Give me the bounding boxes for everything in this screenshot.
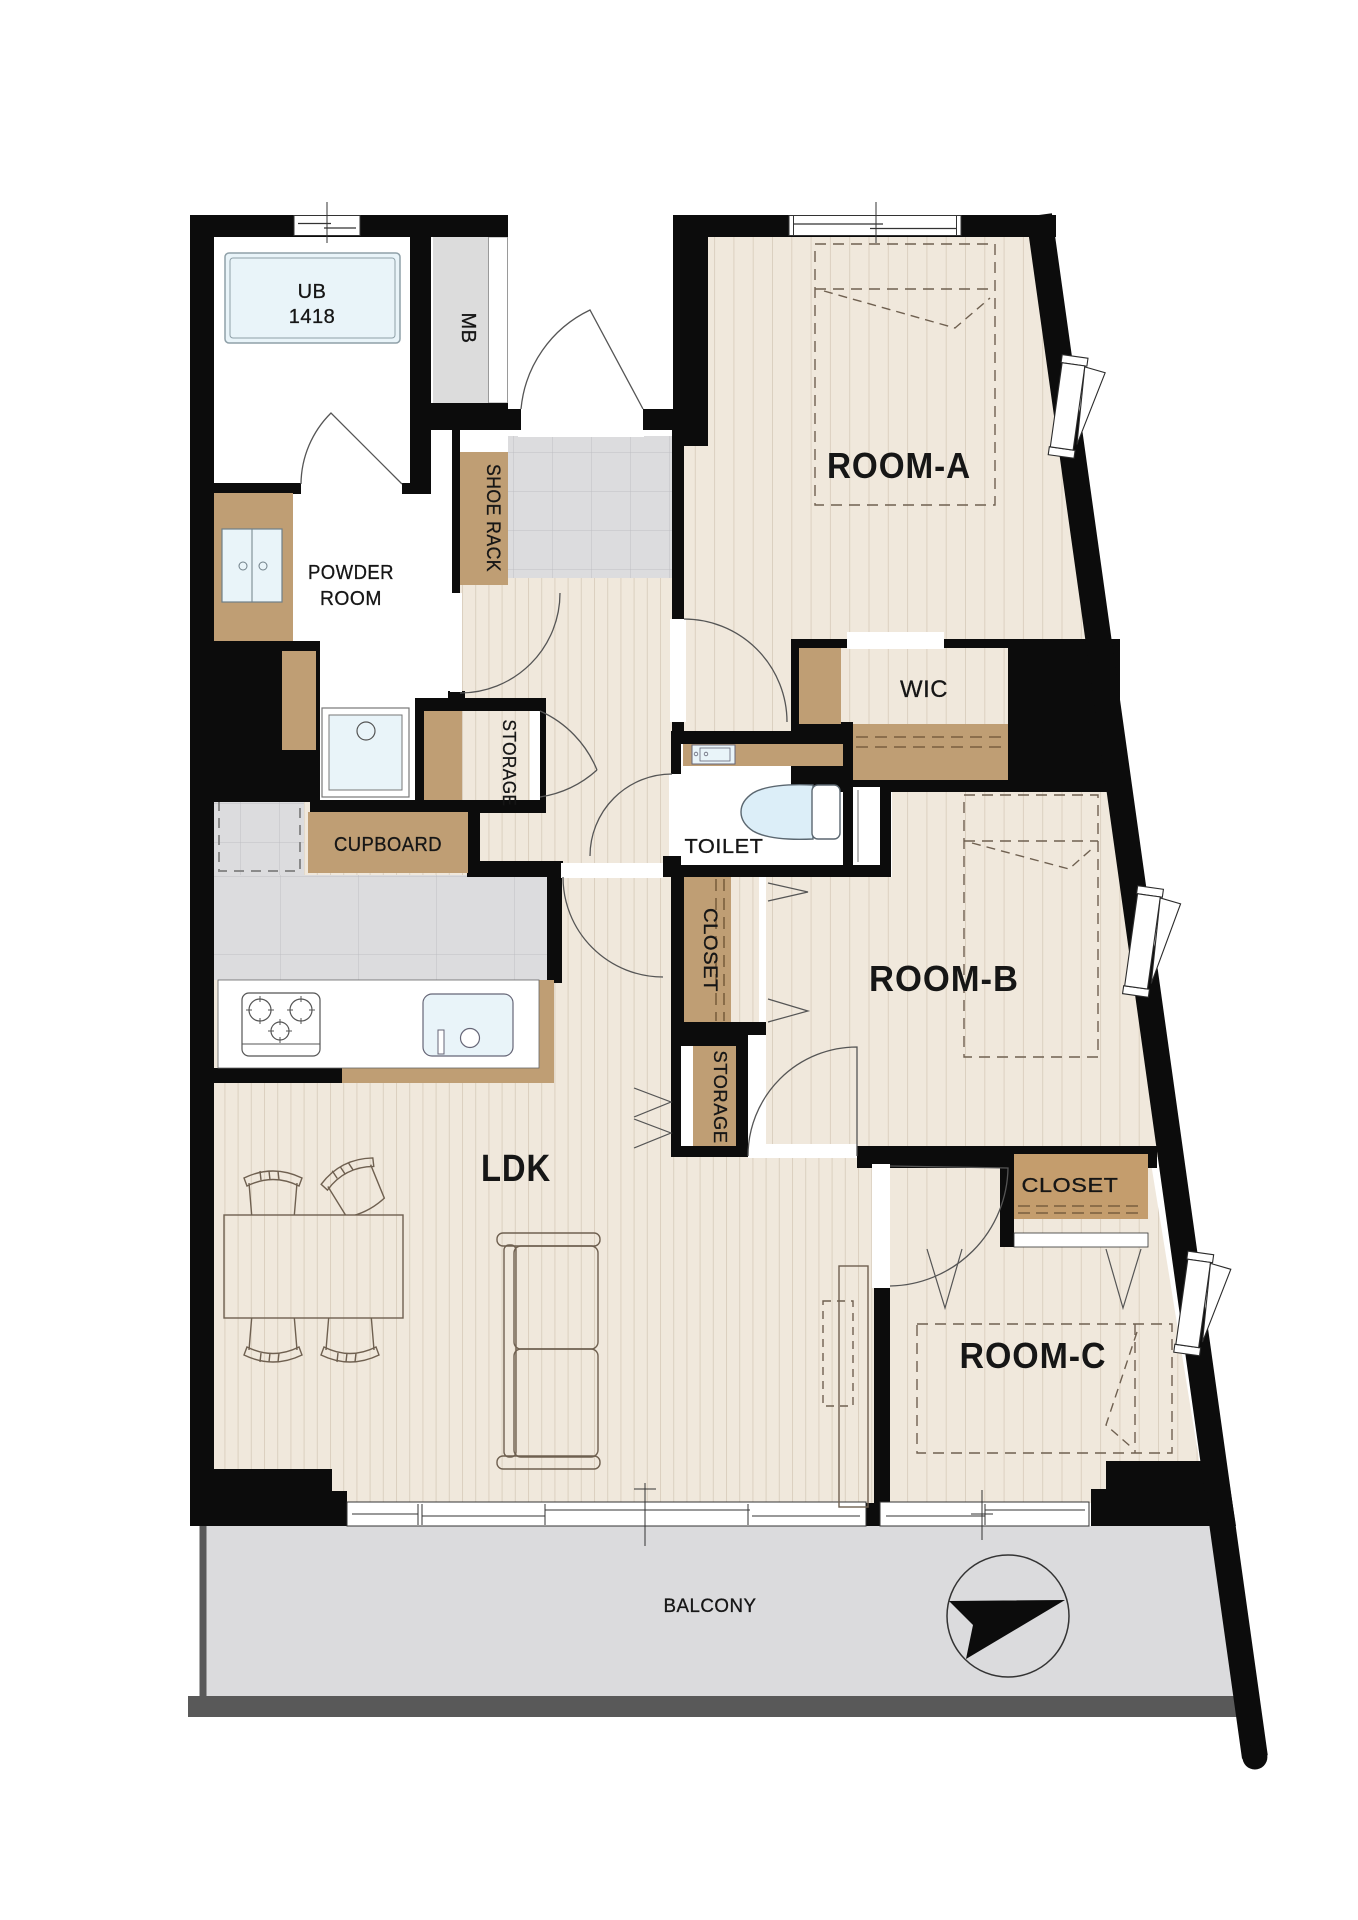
svg-text:1418: 1418 bbox=[289, 306, 336, 328]
svg-text:STORAGE: STORAGE bbox=[710, 1051, 730, 1144]
svg-text:CLOSET: CLOSET bbox=[1022, 1175, 1119, 1197]
svg-text:ROOM-C: ROOM-C bbox=[960, 1335, 1107, 1376]
svg-text:MB: MB bbox=[457, 313, 479, 344]
svg-text:ROOM-B: ROOM-B bbox=[869, 958, 1019, 999]
svg-text:UB: UB bbox=[298, 281, 327, 303]
svg-text:WIC: WIC bbox=[900, 676, 948, 703]
svg-text:BALCONY: BALCONY bbox=[664, 1596, 757, 1617]
svg-text:CLOSET: CLOSET bbox=[699, 908, 720, 992]
svg-text:ROOM-A: ROOM-A bbox=[827, 445, 971, 486]
svg-text:CUPBOARD: CUPBOARD bbox=[334, 834, 442, 856]
svg-text:TOILET: TOILET bbox=[685, 836, 764, 858]
svg-text:LDK: LDK bbox=[481, 1148, 551, 1190]
svg-text:ROOM: ROOM bbox=[320, 588, 382, 610]
svg-text:SHOE RACK: SHOE RACK bbox=[482, 464, 503, 572]
svg-text:STORAGE: STORAGE bbox=[499, 720, 519, 807]
svg-text:POWDER: POWDER bbox=[308, 562, 394, 584]
